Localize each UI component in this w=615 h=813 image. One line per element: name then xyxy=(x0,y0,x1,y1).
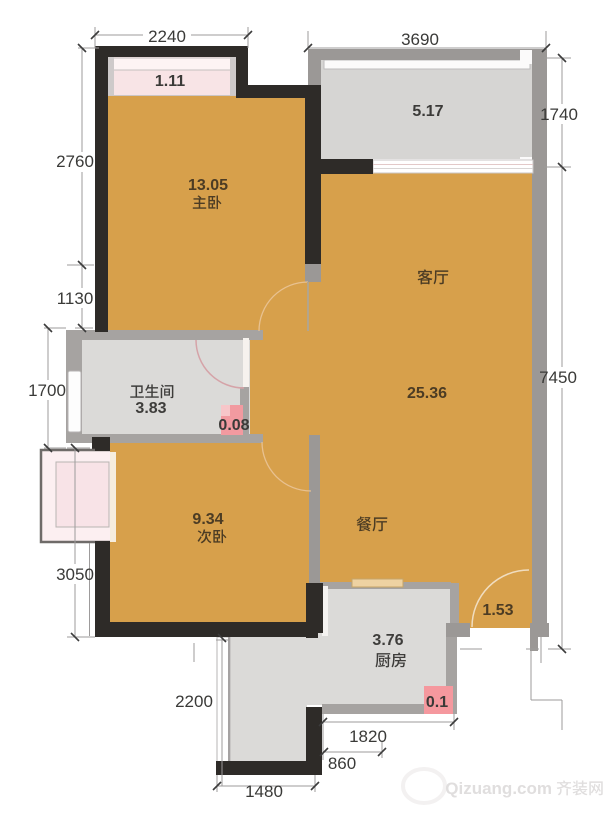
svg-text:9.34: 9.34 xyxy=(192,511,223,528)
svg-text:2200: 2200 xyxy=(175,692,213,711)
svg-text:1820: 1820 xyxy=(349,727,387,746)
svg-text:7450: 7450 xyxy=(539,368,577,387)
svg-text:1700: 1700 xyxy=(28,381,66,400)
svg-text:Qizuang.com: Qizuang.com xyxy=(445,779,552,798)
svg-text:2240: 2240 xyxy=(148,27,186,46)
svg-text:3690: 3690 xyxy=(401,30,439,49)
svg-text:3.83: 3.83 xyxy=(135,400,166,417)
svg-text:13.05: 13.05 xyxy=(188,177,228,194)
svg-text:25.36: 25.36 xyxy=(407,385,447,402)
svg-text:2760: 2760 xyxy=(56,152,94,171)
svg-text:0.1: 0.1 xyxy=(426,694,448,711)
svg-text:0.08: 0.08 xyxy=(218,417,249,434)
svg-text:3050: 3050 xyxy=(56,565,94,584)
svg-text:1.11: 1.11 xyxy=(155,73,185,90)
svg-text:5.17: 5.17 xyxy=(412,103,443,120)
svg-text:860: 860 xyxy=(328,754,356,773)
svg-text:3.76: 3.76 xyxy=(372,632,403,649)
svg-text:1130: 1130 xyxy=(57,289,94,308)
svg-text:1740: 1740 xyxy=(540,105,578,124)
svg-text:1480: 1480 xyxy=(245,782,283,801)
svg-text:1.53: 1.53 xyxy=(482,602,513,619)
